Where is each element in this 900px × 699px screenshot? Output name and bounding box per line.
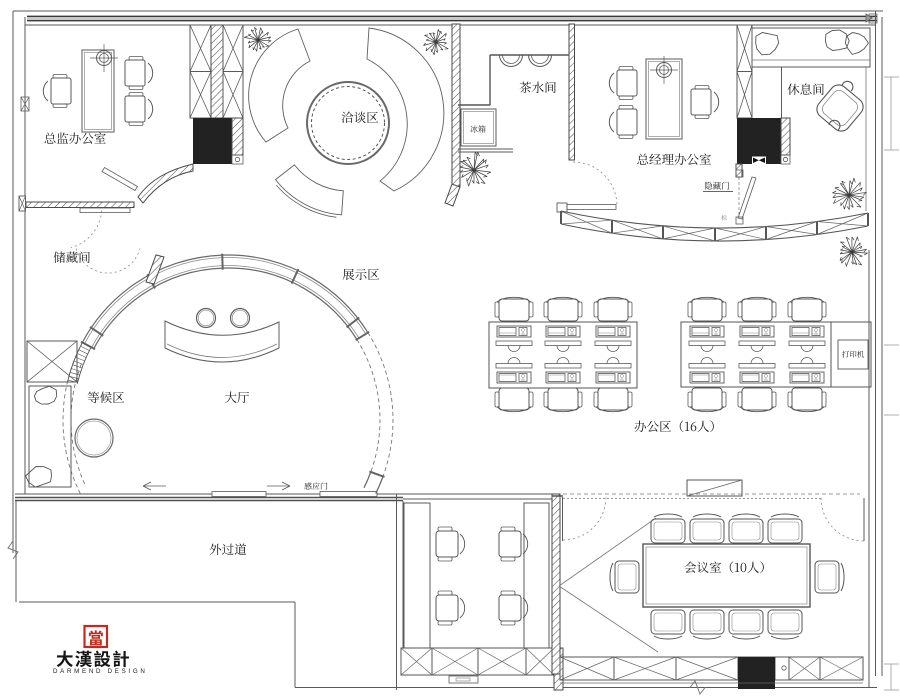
svg-text:DARMEND DESIGN: DARMEND DESIGN — [53, 668, 148, 675]
